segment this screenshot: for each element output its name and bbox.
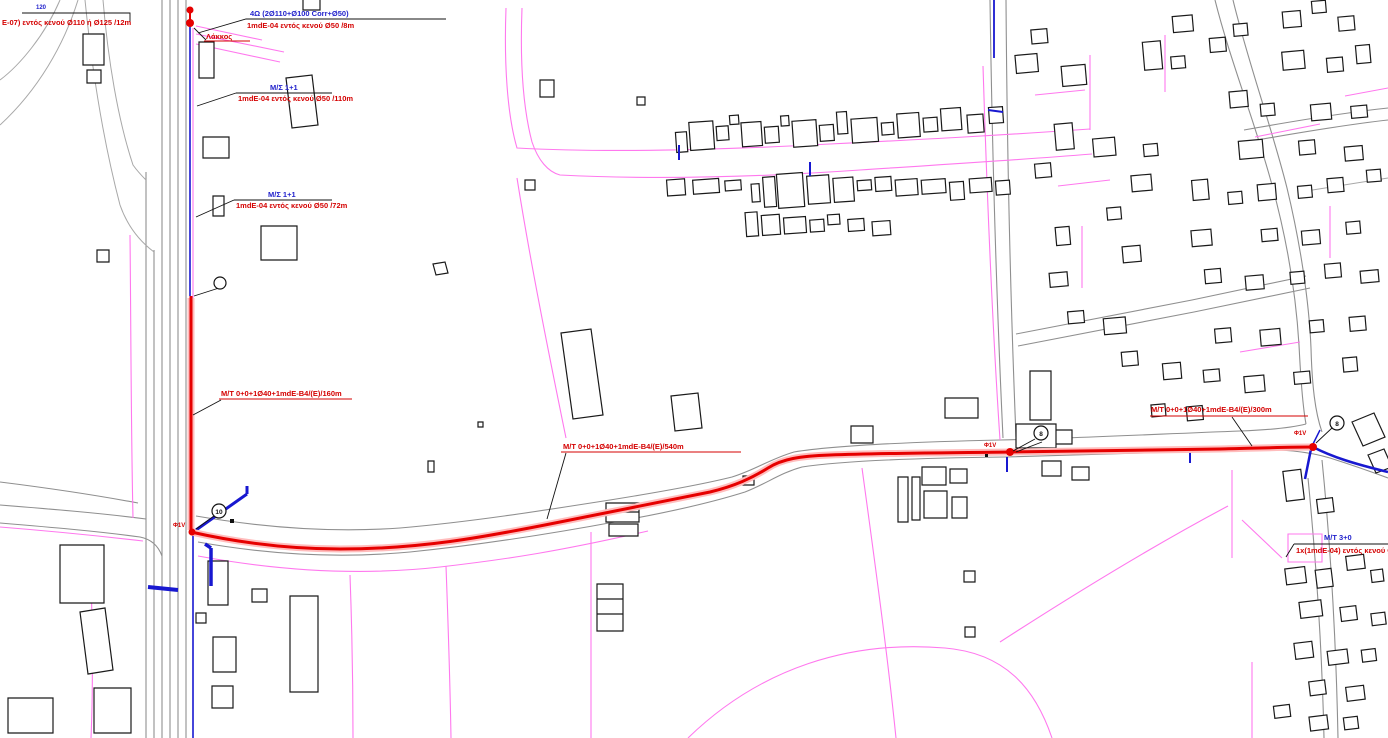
pit-dot <box>186 19 194 27</box>
manhole-number-left: 10 <box>215 509 223 516</box>
annotation-lines-layer <box>22 13 1388 557</box>
node-label-right: Φ1V <box>1294 431 1306 437</box>
junction-dot-left <box>189 529 196 536</box>
ms2-sub: 1mdE-04 εντός κενού Ø50 /72m <box>236 201 348 210</box>
pit-dot <box>187 7 194 14</box>
blue-cables-layer <box>148 0 1388 738</box>
node-label-left: Φ1V <box>173 523 185 529</box>
junction-dot-right <box>1309 443 1317 451</box>
buildings-layer <box>8 0 1388 738</box>
ms1-title: M/Σ 1+1 <box>270 83 298 92</box>
ms3-sub: 1x(1mdE-04) εντός κενού Ø <box>1296 546 1388 555</box>
node-label-mid: Φ1V <box>984 443 996 449</box>
ms1-sub: 1mdE-04 εντός κενού Ø50 /110m <box>238 94 353 103</box>
manhole-number-mid: 8 <box>1039 431 1043 438</box>
duct-label-top-blue: 4Ω (2Ø110+Ø100 Corr+Ø50) <box>250 9 349 18</box>
manhole-symbols-layer: 10 8 8 <box>212 277 1344 518</box>
junction-dot-mid <box>1006 448 1014 456</box>
route-label-left: M/T 0+0+1Ø40+1mdE-B4/(E)/160m <box>221 389 342 398</box>
ms3-title: M/T 3+0 <box>1324 533 1352 542</box>
duct-label-top-red: 1mdE-04 εντός κενού Ø50 /8m <box>247 21 354 30</box>
ms2-title: M/Σ 1+1 <box>268 190 296 199</box>
route-main-segment <box>191 447 1313 549</box>
distance-label: 120 <box>36 5 47 11</box>
route-label-right: M/T 0+0+1Ø40+1mdE-B4/(E)/300m <box>1151 405 1272 414</box>
manhole-symbol-top <box>214 277 226 289</box>
duct-label-topleft: Ε-07) εντός κενού Ø110 ή Ø125 /12m <box>2 18 132 27</box>
labels-layer: 120 Ε-07) εντός κενού Ø110 ή Ø125 /12m 4… <box>2 5 1388 555</box>
cable-route-red <box>186 7 1317 550</box>
manhole-number-right: 8 <box>1335 421 1339 428</box>
map-canvas[interactable]: 10 8 8 120 Ε-07) εντός κενού Ø110 ή Ø125… <box>0 0 1388 738</box>
pit-label: Λάκκος <box>206 32 232 41</box>
route-label-center: M/T 0+0+1Ø40+1mdE-B4/(E)/540m <box>563 442 684 451</box>
